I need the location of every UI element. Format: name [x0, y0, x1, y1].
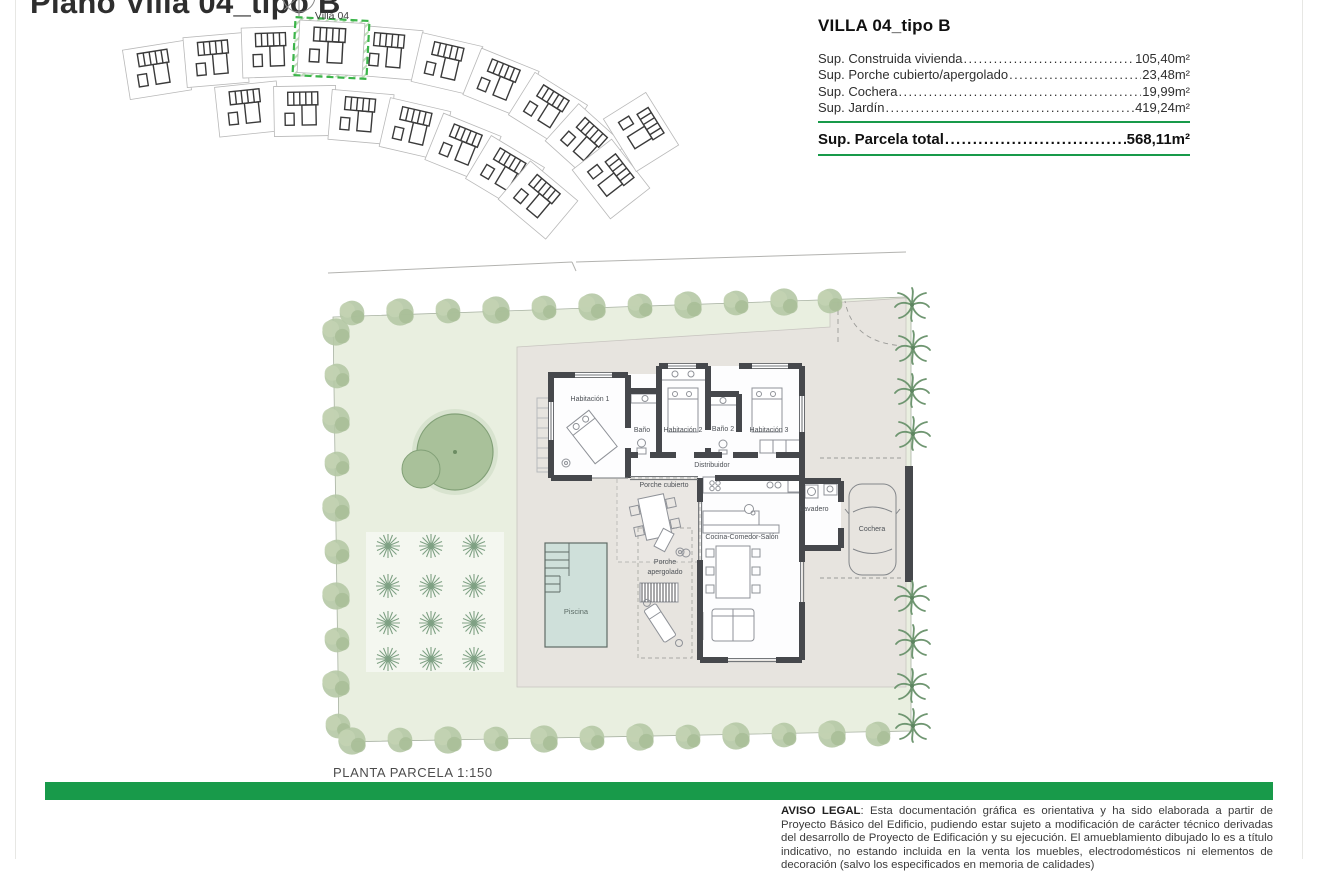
scale-label: PLANTA PARCELA 1:150: [333, 765, 493, 780]
leader-dots: [945, 130, 1126, 150]
villa-04-highlight: [293, 17, 370, 79]
parcel-plan: Habitación 1 Baño Habitación 2 Baño 2 Ha…: [322, 252, 930, 755]
summary-row-label: Sup. Construida vivienda: [818, 51, 963, 67]
summary-row: Sup. Construida vivienda 105,40m²: [818, 51, 1190, 67]
summary-row-label: Sup. Porche cubierto/apergolado: [818, 67, 1008, 83]
summary-separator: [818, 121, 1190, 123]
summary-row-label: Sup. Jardín: [818, 100, 885, 116]
room-label-habitacion-3: Habitación 3: [750, 427, 789, 434]
summary-total-row: Sup. Parcela total 568,11m²: [818, 130, 1190, 150]
summary-row: Sup. Jardín 419,24m²: [818, 100, 1190, 116]
summary-row-value: 19,99m²: [1142, 84, 1190, 100]
room-label-lavadero: Lavadero: [799, 506, 828, 513]
area-summary-table: VILLA 04_tipo B Sup. Construida vivienda…: [818, 16, 1190, 156]
summary-total-label: Sup. Parcela total: [818, 130, 944, 150]
summary-row: Sup. Porche cubierto/apergolado 23,48m²: [818, 67, 1190, 83]
footer-accent-bar: [45, 782, 1273, 800]
leader-dots: [1009, 67, 1141, 83]
summary-separator: [818, 154, 1190, 156]
site-villas: [122, 25, 678, 239]
bed-habitacion-3: [752, 388, 782, 432]
pool: [545, 543, 607, 647]
room-label-habitacion-1: Habitación 1: [571, 396, 610, 403]
summary-row-label: Sup. Cochera: [818, 84, 898, 100]
room-label-bano-1: Baño: [634, 427, 650, 434]
room-label-cochera: Cochera: [859, 526, 886, 533]
room-label-porche-cubierto: Porche cubierto: [639, 482, 688, 489]
villa-04-label: Villa 04: [315, 10, 349, 22]
summary-row: Sup. Cochera 19,99m²: [818, 84, 1190, 100]
room-label-porche-apergolado-2: apergolado: [647, 569, 682, 576]
leader-dots: [899, 84, 1142, 100]
room-label-porche-apergolado-1: Porche: [654, 559, 676, 566]
bed-habitacion-2: [668, 388, 698, 432]
planting-bed: [366, 532, 504, 672]
summary-row-value: 105,40m²: [1135, 51, 1190, 67]
room-label-habitacion-2: Habitación 2: [664, 427, 703, 434]
summary-total-value: 568,11m²: [1127, 130, 1190, 150]
summary-row-value: 419,24m²: [1135, 100, 1190, 116]
room-label-bano-2: Baño 2: [712, 426, 734, 433]
legal-notice-title: AVISO LEGAL: [781, 805, 861, 817]
leader-dots: [964, 51, 1135, 67]
room-label-piscina: Piscina: [564, 607, 589, 616]
summary-title: VILLA 04_tipo B: [818, 16, 1190, 36]
road-edge-line: [328, 252, 906, 273]
legal-notice: AVISO LEGAL: Esta documentación gráfica …: [781, 805, 1273, 873]
room-label-distribuidor: Distribuidor: [694, 462, 730, 469]
cochera-wall: [905, 466, 913, 582]
site-plan: Villa 04: [122, 0, 678, 239]
room-label-cocina: Cocina-Comedor-Salón: [705, 534, 778, 541]
leader-dots: [886, 100, 1135, 116]
summary-row-value: 23,48m²: [1142, 67, 1190, 83]
